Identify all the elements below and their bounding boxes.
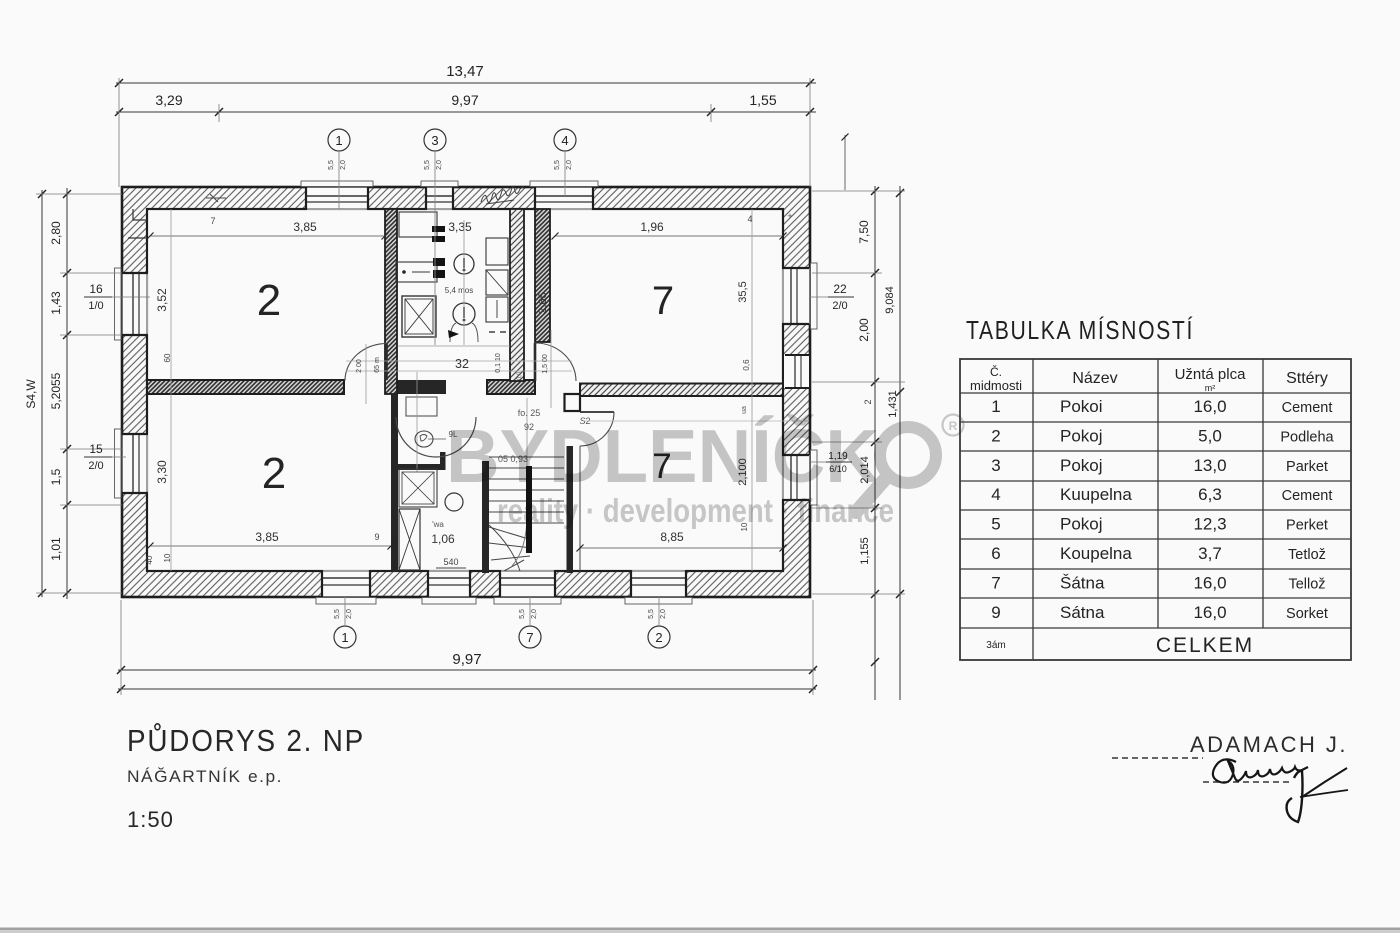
svg-text:6,3: 6,3 [1198,485,1222,504]
svg-text:NÁĞARTNÍK e.p.: NÁĞARTNÍK e.p. [127,767,283,786]
svg-text:0,1 10: 0,1 10 [495,353,502,373]
svg-text:Cement: Cement [1282,400,1333,416]
svg-text:1,55: 1,55 [749,92,776,108]
svg-text:2,0: 2,0 [660,609,667,619]
svg-text:3,7: 3,7 [1198,544,1222,563]
svg-text:ua: ua [741,406,748,414]
svg-text:Pokoj: Pokoj [1060,427,1103,446]
svg-text:13,47: 13,47 [446,63,484,80]
svg-text:Sorket: Sorket [1286,606,1328,622]
svg-text:9: 9 [991,603,1000,622]
svg-text:R: R [949,419,958,433]
svg-text:5,5: 5,5 [328,160,335,170]
svg-text:540: 540 [443,557,458,567]
svg-text:7: 7 [652,279,674,323]
svg-text:Cement: Cement [1282,488,1333,504]
svg-text:Koupelna: Koupelna [1060,544,1132,563]
svg-text:S4,W: S4,W [24,379,38,409]
svg-text:Šátna: Šátna [1060,574,1105,593]
svg-text:BYDLENÍČK: BYDLENÍČK [446,414,879,498]
svg-text:Perket: Perket [1286,518,1328,534]
svg-text:5,4 mos: 5,4 mos [445,286,473,295]
svg-text:reality · development · financ: reality · development · finance [497,492,894,529]
svg-text:Užntá plca: Užntá plca [1175,366,1247,383]
svg-text:2: 2 [262,449,286,498]
svg-text:32: 32 [455,357,469,371]
svg-text:6: 6 [991,544,1000,563]
svg-text:4: 4 [991,485,1000,504]
svg-text:10: 10 [163,553,172,562]
svg-text:2: 2 [655,630,662,645]
svg-text:1: 1 [341,630,348,645]
svg-text:'wa: 'wa [432,520,444,529]
svg-text:1/0: 1/0 [88,300,103,312]
svg-text:2: 2 [257,276,281,325]
svg-text:Pokoi: Pokoi [1060,397,1103,416]
svg-text:2/0: 2/0 [88,460,103,472]
svg-text:7: 7 [526,630,533,645]
svg-text:5,5: 5,5 [424,160,431,170]
svg-text:16: 16 [89,282,103,296]
svg-text:PŮDORYS 2. NP: PŮDORYS 2. NP [127,722,365,758]
svg-text:3,35: 3,35 [448,220,472,234]
svg-text:8,85: 8,85 [660,530,684,544]
svg-text:Sátna: Sátna [1060,603,1105,622]
svg-text:2,0: 2,0 [566,160,573,170]
svg-text:16,0: 16,0 [1193,603,1226,622]
svg-text:1: 1 [991,397,1000,416]
svg-text:2 00: 2 00 [356,359,363,373]
svg-text:+: + [787,211,792,221]
svg-text:15: 15 [89,442,103,456]
svg-text:Parket: Parket [1286,459,1328,475]
svg-text:4: 4 [561,133,568,148]
svg-text:1,431: 1,431 [887,390,899,418]
svg-text:Podleha: Podleha [1280,430,1334,446]
svg-text:2: 2 [991,427,1000,446]
svg-text:ADAMACH J.: ADAMACH J. [1190,732,1348,757]
svg-text:40: 40 [145,555,154,564]
svg-text:Tetlož: Tetlož [1288,547,1326,563]
svg-text:16,0: 16,0 [1193,397,1226,416]
svg-text:9: 9 [374,532,379,542]
svg-text:5,5: 5,5 [334,609,341,619]
svg-text:16,0: 16,0 [1193,574,1226,593]
svg-text:3,52: 3,52 [155,288,169,312]
svg-text:5,5: 5,5 [519,609,526,619]
svg-text:1,5: 1,5 [49,468,63,485]
svg-text:5: 5 [991,515,1000,534]
svg-text:2,00: 2,00 [857,318,871,342]
svg-text:Sttéry: Sttéry [1286,370,1328,387]
svg-text:60: 60 [163,353,172,362]
svg-text:3,85: 3,85 [293,220,317,234]
svg-text:Tellož: Tellož [1288,577,1325,593]
svg-text:7: 7 [210,216,215,226]
svg-text:35,5: 35,5 [737,281,749,302]
svg-text:3,29: 3,29 [155,92,182,108]
svg-text:9,97: 9,97 [451,92,478,108]
svg-text:2,80: 2,80 [49,221,63,245]
svg-text:1,155: 1,155 [859,537,871,565]
svg-text:7: 7 [991,574,1000,593]
svg-text:TABULKA MÍSNOSTÍ: TABULKA MÍSNOSTÍ [966,315,1194,345]
svg-text:3,85: 3,85 [255,530,279,544]
svg-text:Č.: Č. [990,364,1002,379]
svg-text:1:50: 1:50 [127,807,174,832]
svg-text:m²: m² [1205,383,1216,393]
svg-text:1: 1 [335,133,342,148]
svg-text:1,96: 1,96 [640,220,664,234]
svg-text:2,0: 2,0 [436,160,443,170]
svg-text:12,3: 12,3 [1193,515,1226,534]
svg-text:5,0: 5,0 [1198,427,1222,446]
svg-text:Pokoj: Pokoj [1060,456,1103,475]
svg-text:0,6: 0,6 [742,359,751,371]
svg-text:4: 4 [747,214,752,224]
svg-text:Název: Název [1072,370,1117,387]
svg-text:midmosti: midmosti [970,378,1022,393]
svg-text:65 m: 65 m [374,357,381,373]
svg-text:2,0: 2,0 [340,160,347,170]
svg-text:3: 3 [431,133,438,148]
svg-text:2,0: 2,0 [531,609,538,619]
svg-text:9,97: 9,97 [452,651,481,668]
svg-text:3ám: 3ám [986,640,1005,651]
svg-text:Pokoj: Pokoj [1060,515,1103,534]
svg-text:5,2055: 5,2055 [49,372,63,409]
svg-text:1,06: 1,06 [431,532,455,546]
svg-text:1,43: 1,43 [49,291,63,315]
svg-text:13,0: 13,0 [1193,456,1226,475]
svg-text:3: 3 [991,456,1000,475]
svg-text:9,084: 9,084 [884,286,896,314]
svg-text:2,0: 2,0 [346,609,353,619]
svg-text:5,5: 5,5 [554,160,561,170]
svg-text:5,5: 5,5 [648,609,655,619]
svg-text:1,01: 1,01 [49,537,63,561]
svg-text:1,5 00: 1,5 00 [542,354,549,374]
svg-text:2: 2 [863,399,873,404]
svg-text:2/0: 2/0 [832,300,847,312]
svg-text:22: 22 [833,282,847,296]
svg-text:3,30: 3,30 [155,460,169,484]
svg-text:CELKEM: CELKEM [1156,634,1254,657]
svg-text:2,65: 2,65 [537,292,549,313]
svg-text:0,0: 0,0 [517,371,523,380]
svg-text:7,50: 7,50 [857,220,871,244]
svg-text:Kuupelna: Kuupelna [1060,485,1132,504]
